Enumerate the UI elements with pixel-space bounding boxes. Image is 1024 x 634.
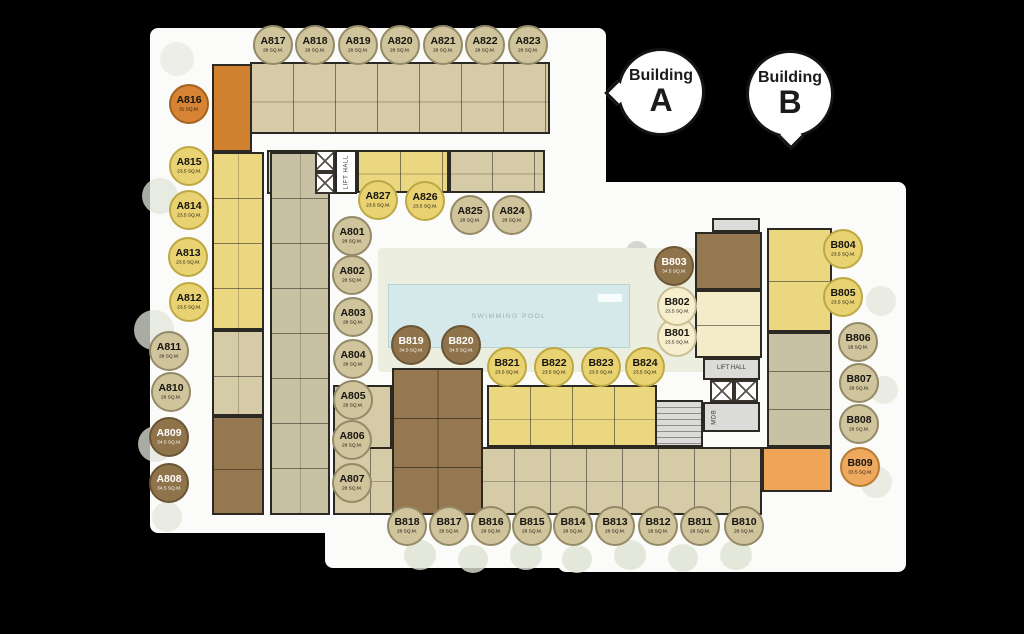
unit-id: A826 [412,192,437,203]
unit-badge-b815[interactable]: B81528 SQ.M. [512,506,552,546]
unit-size: 33.5 SQ.M. [848,470,872,474]
unit-size: 28 SQ.M. [848,345,868,349]
unit-badge-b819[interactable]: B81934.5 SQ.M. [391,325,431,365]
unit-badge-a818[interactable]: A81828 SQ.M. [295,25,335,65]
unit-size: 28 SQ.M. [522,529,542,533]
lift-shaft-icon [734,380,758,402]
unit-id: A815 [176,157,201,168]
unit-badge-a815[interactable]: A81523.5 SQ.M. [169,146,209,186]
building-b-mdb-room: MDB [703,402,760,432]
lift-shaft-icon [710,380,734,402]
unit-badge-a825[interactable]: A82528 SQ.M. [450,195,490,235]
unit-size: 34.5 SQ.M. [157,486,181,490]
unit-id: A827 [365,191,390,202]
unit-id: A823 [515,36,540,47]
unit-size: 28 SQ.M. [342,239,362,243]
unit-id: B808 [846,415,871,426]
unit-badge-a822[interactable]: A82228 SQ.M. [465,25,505,65]
building-a-bubble: Building A [600,40,720,150]
unit-badge-a803[interactable]: A80328 SQ.M. [333,297,373,337]
unit-id: A812 [176,293,201,304]
unit-size: 28 SQ.M. [159,354,179,358]
unit-size: 28 SQ.M. [397,529,417,533]
building-b-unit-b803-block [695,232,762,290]
unit-badge-a816[interactable]: A81631 SQ.M. [169,84,209,124]
unit-id: A804 [340,350,365,361]
unit-id: A822 [472,36,497,47]
unit-badge-b817[interactable]: B81728 SQ.M. [429,506,469,546]
unit-size: 28 SQ.M. [342,443,362,447]
unit-size: 23.5 SQ.M. [665,309,689,313]
tree-icon [668,544,698,572]
unit-size: 28 SQ.M. [263,48,283,52]
swimming-pool-label: SWIMMING POOL [472,312,547,319]
unit-size: 28 SQ.M. [690,529,710,533]
unit-size: 23.5 SQ.M. [665,340,689,344]
building-a-units-a824-a825 [449,150,545,193]
unit-size: 23.5 SQ.M. [831,300,855,304]
unit-id: B818 [394,517,419,528]
unit-badge-a809[interactable]: A80934.5 SQ.M. [149,417,189,457]
unit-id: B803 [661,257,686,268]
unit-badge-a806[interactable]: A80628 SQ.M. [332,420,372,460]
unit-badge-a813[interactable]: A81323.5 SQ.M. [168,237,208,277]
unit-id: B807 [846,374,871,385]
unit-badge-b812[interactable]: B81228 SQ.M. [638,506,678,546]
unit-badge-a819[interactable]: A81928 SQ.M. [338,25,378,65]
building-a-bubble-circle: Building A [617,48,705,136]
building-a-left-wing-east-units [270,152,330,515]
unit-size: 34.5 SQ.M. [662,269,686,273]
unit-size: 28 SQ.M. [390,48,410,52]
unit-size: 28 SQ.M. [305,48,325,52]
building-a-lift-hall: LIFT HALL [335,150,357,194]
unit-badge-a826[interactable]: A82623.5 SQ.M. [405,181,445,221]
building-b-units-b804-b805 [767,228,832,332]
unit-id: A802 [339,266,364,277]
unit-badge-b822[interactable]: B82223.5 SQ.M. [534,347,574,387]
unit-size: 23.5 SQ.M. [633,370,657,374]
unit-badge-b810[interactable]: B81028 SQ.M. [724,506,764,546]
unit-badge-a817[interactable]: A81728 SQ.M. [253,25,293,65]
unit-id: B804 [830,240,855,251]
unit-id: B823 [588,358,613,369]
unit-badge-a823[interactable]: A82328 SQ.M. [508,25,548,65]
unit-size: 28 SQ.M. [342,278,362,282]
building-a-unit-a816-block [212,64,252,152]
unit-badge-a802[interactable]: A80228 SQ.M. [332,255,372,295]
building-b-units-b801-b802 [695,290,762,358]
unit-id: B817 [436,517,461,528]
unit-badge-b818[interactable]: B81828 SQ.M. [387,506,427,546]
unit-size: 23.5 SQ.M. [176,260,200,264]
unit-size: 28 SQ.M. [161,395,181,399]
unit-size: 23.5 SQ.M. [542,370,566,374]
unit-size: 28 SQ.M. [460,218,480,222]
unit-id: A817 [260,36,285,47]
building-a-top-wing-units [250,62,550,134]
unit-id: A807 [339,474,364,485]
lift-shaft-icon [315,172,335,194]
pool-lane [598,294,622,302]
unit-id: A820 [387,36,412,47]
building-a-left-wing-tan-units [212,330,264,416]
unit-size: 28 SQ.M. [648,529,668,533]
unit-size: 23.5 SQ.M. [831,252,855,256]
unit-id: A809 [156,428,181,439]
unit-id: B821 [494,358,519,369]
unit-size: 23.5 SQ.M. [177,213,201,217]
unit-badge-a810[interactable]: A81028 SQ.M. [151,372,191,412]
unit-badge-a808[interactable]: A80834.5 SQ.M. [149,463,189,503]
lift-hall-a-label: LIFT HALL [341,160,352,184]
unit-badge-b806[interactable]: B80628 SQ.M. [838,322,878,362]
unit-size: 34.5 SQ.M. [399,348,423,352]
unit-badge-a821[interactable]: A82128 SQ.M. [423,25,463,65]
unit-badge-a820[interactable]: A82028 SQ.M. [380,25,420,65]
unit-id: A801 [339,227,364,238]
unit-id: B811 [688,517,713,528]
tree-icon [562,545,592,573]
unit-size: 23.5 SQ.M. [177,305,201,309]
building-b-bubble: Building B [740,40,850,160]
unit-badge-b813[interactable]: B81328 SQ.M. [595,506,635,546]
unit-id: A806 [339,431,364,442]
building-b-unit-b809-block [762,447,832,492]
building-b-bubble-letter: B [778,86,801,118]
unit-badge-a812[interactable]: A81223.5 SQ.M. [169,282,209,322]
unit-badge-b811[interactable]: B81128 SQ.M. [680,506,720,546]
unit-id: A814 [176,201,201,212]
building-b-entry-canopy [712,218,760,232]
unit-size: 28 SQ.M. [481,529,501,533]
unit-id: B805 [830,288,855,299]
building-b-units-b819-b820 [392,368,483,515]
unit-size: 23.5 SQ.M. [177,169,201,173]
unit-id: A803 [340,308,365,319]
unit-size: 23.5 SQ.M. [589,370,613,374]
unit-id: B824 [632,358,657,369]
unit-id: B802 [664,297,689,308]
unit-id: A811 [157,342,182,353]
unit-size: 28 SQ.M. [849,386,869,390]
unit-badge-b820[interactable]: B82034.5 SQ.M. [441,325,481,365]
unit-badge-b803[interactable]: B80334.5 SQ.M. [654,246,694,286]
unit-badge-b808[interactable]: B80828 SQ.M. [839,404,879,444]
unit-size: 34.5 SQ.M. [157,440,181,444]
tree-icon [866,286,896,316]
unit-id: A805 [340,391,365,402]
unit-size: 28 SQ.M. [439,529,459,533]
unit-size: 23.5 SQ.M. [366,203,390,207]
unit-badge-a827[interactable]: A82723.5 SQ.M. [358,180,398,220]
mdb-b-label: MDB [710,409,718,425]
unit-id: A825 [457,206,482,217]
unit-id: A819 [345,36,370,47]
unit-badge-b809[interactable]: B80933.5 SQ.M. [840,447,880,487]
unit-badge-a801[interactable]: A80128 SQ.M. [332,216,372,256]
unit-badge-b816[interactable]: B81628 SQ.M. [471,506,511,546]
unit-size: 28 SQ.M. [348,48,368,52]
unit-id: B822 [541,358,566,369]
unit-id: B812 [645,517,670,528]
unit-id: A808 [156,474,181,485]
unit-id: B810 [731,517,756,528]
unit-id: B816 [478,517,503,528]
unit-size: 28 SQ.M. [563,529,583,533]
unit-id: B813 [602,517,627,528]
unit-badge-b814[interactable]: B81428 SQ.M. [553,506,593,546]
unit-id: B809 [847,458,872,469]
lift-shaft-icon [315,150,335,172]
building-a-left-wing-brown-units [212,416,264,515]
unit-badge-a805[interactable]: A80528 SQ.M. [333,380,373,420]
tree-icon [160,42,194,76]
unit-size: 28 SQ.M. [433,48,453,52]
building-a-left-wing-yellow-units [212,152,264,330]
unit-id: B801 [664,328,689,339]
unit-badge-a814[interactable]: A81423.5 SQ.M. [169,190,209,230]
unit-size: 28 SQ.M. [849,427,869,431]
unit-size: 28 SQ.M. [518,48,538,52]
unit-badge-b824[interactable]: B82423.5 SQ.M. [625,347,665,387]
unit-badge-a824[interactable]: A82428 SQ.M. [492,195,532,235]
unit-size: 28 SQ.M. [475,48,495,52]
unit-badge-a811[interactable]: A81128 SQ.M. [149,331,189,371]
unit-id: A821 [430,36,455,47]
unit-size: 23.5 SQ.M. [495,370,519,374]
unit-size: 34.5 SQ.M. [449,348,473,352]
unit-id: A810 [158,383,183,394]
unit-badge-a804[interactable]: A80428 SQ.M. [333,339,373,379]
unit-size: 28 SQ.M. [502,218,522,222]
unit-size: 31 SQ.M. [179,107,199,111]
unit-size: 23.5 SQ.M. [413,204,437,208]
building-a-bubble-letter: A [649,84,672,116]
unit-id: A824 [499,206,524,217]
tree-icon [458,545,488,573]
unit-badge-b804[interactable]: B80423.5 SQ.M. [823,229,863,269]
unit-size: 28 SQ.M. [605,529,625,533]
building-b-units-b821-b824 [487,385,657,447]
building-b-lift-hall: LIFT HALL [703,358,760,380]
unit-size: 28 SQ.M. [343,362,363,366]
lift-hall-b-label: LIFT HALL [716,364,748,371]
unit-size: 28 SQ.M. [734,529,754,533]
building-b-stair-block [655,400,703,447]
unit-badge-b807[interactable]: B80728 SQ.M. [839,363,879,403]
unit-id: B806 [845,333,870,344]
unit-size: 28 SQ.M. [342,486,362,490]
unit-badge-b821[interactable]: B82123.5 SQ.M. [487,347,527,387]
unit-size: 28 SQ.M. [343,320,363,324]
unit-id: B820 [448,336,473,347]
unit-size: 28 SQ.M. [343,403,363,407]
floorplan-stage: SWIMMING POOL MDB LIFT HALL LIFT HALL MD… [0,0,1024,634]
unit-badge-b802[interactable]: B80223.5 SQ.M. [657,286,697,326]
unit-id: A818 [302,36,327,47]
building-b-units-b806-b808 [767,332,832,447]
unit-id: B814 [560,517,585,528]
unit-id: A816 [176,95,201,106]
unit-badge-b823[interactable]: B82323.5 SQ.M. [581,347,621,387]
unit-id: B815 [519,517,544,528]
unit-id: A813 [175,248,200,259]
unit-badge-a807[interactable]: A80728 SQ.M. [332,463,372,503]
tree-icon [152,502,182,532]
unit-id: B819 [398,336,423,347]
unit-badge-b805[interactable]: B80523.5 SQ.M. [823,277,863,317]
